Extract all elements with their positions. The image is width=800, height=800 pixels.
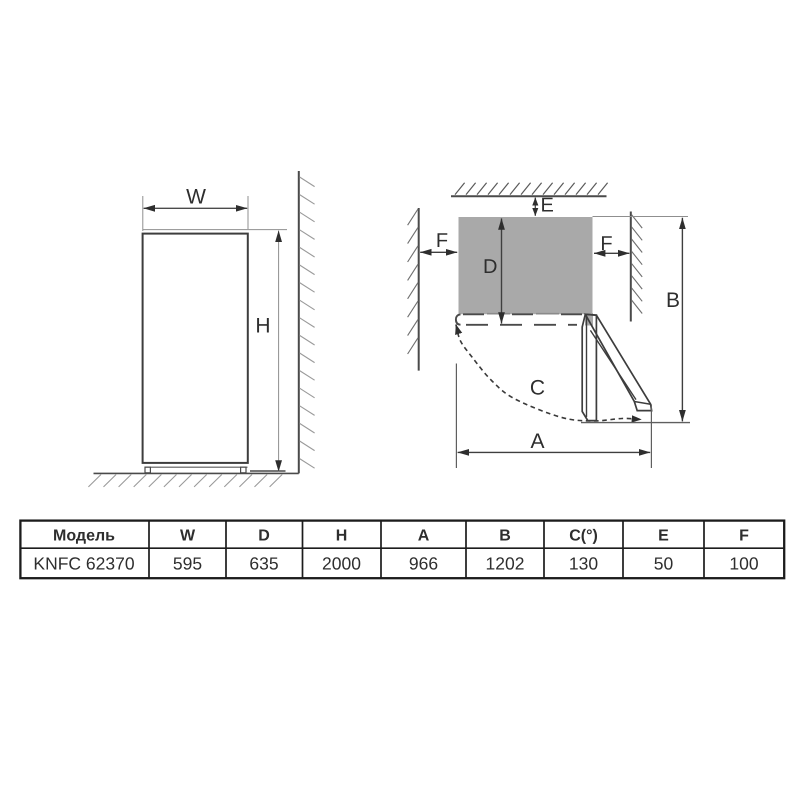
svg-text:B: B [499,528,511,545]
svg-text:D: D [483,256,497,278]
svg-text:2000: 2000 [322,554,361,574]
svg-text:595: 595 [173,554,202,574]
svg-text:B: B [666,289,680,312]
svg-text:W: W [180,528,196,545]
svg-text:E: E [658,528,669,545]
svg-text:130: 130 [569,554,598,574]
svg-text:KNFC 62370: KNFC 62370 [33,554,134,574]
svg-text:966: 966 [409,554,438,574]
svg-text:W: W [186,186,206,209]
svg-text:D: D [258,528,270,545]
svg-text:H: H [255,315,270,338]
svg-text:A: A [418,528,430,545]
svg-text:H: H [336,528,348,545]
svg-text:F: F [436,230,448,252]
svg-text:F: F [739,528,749,545]
svg-text:50: 50 [654,554,674,574]
svg-text:F: F [600,233,612,255]
svg-text:635: 635 [249,554,278,574]
svg-text:C(°): C(°) [569,528,598,545]
svg-text:A: A [530,430,544,453]
svg-text:Модель: Модель [53,528,115,545]
svg-text:1202: 1202 [486,554,525,574]
svg-text:C: C [530,377,545,400]
svg-text:E: E [541,195,554,217]
svg-text:100: 100 [729,554,758,574]
